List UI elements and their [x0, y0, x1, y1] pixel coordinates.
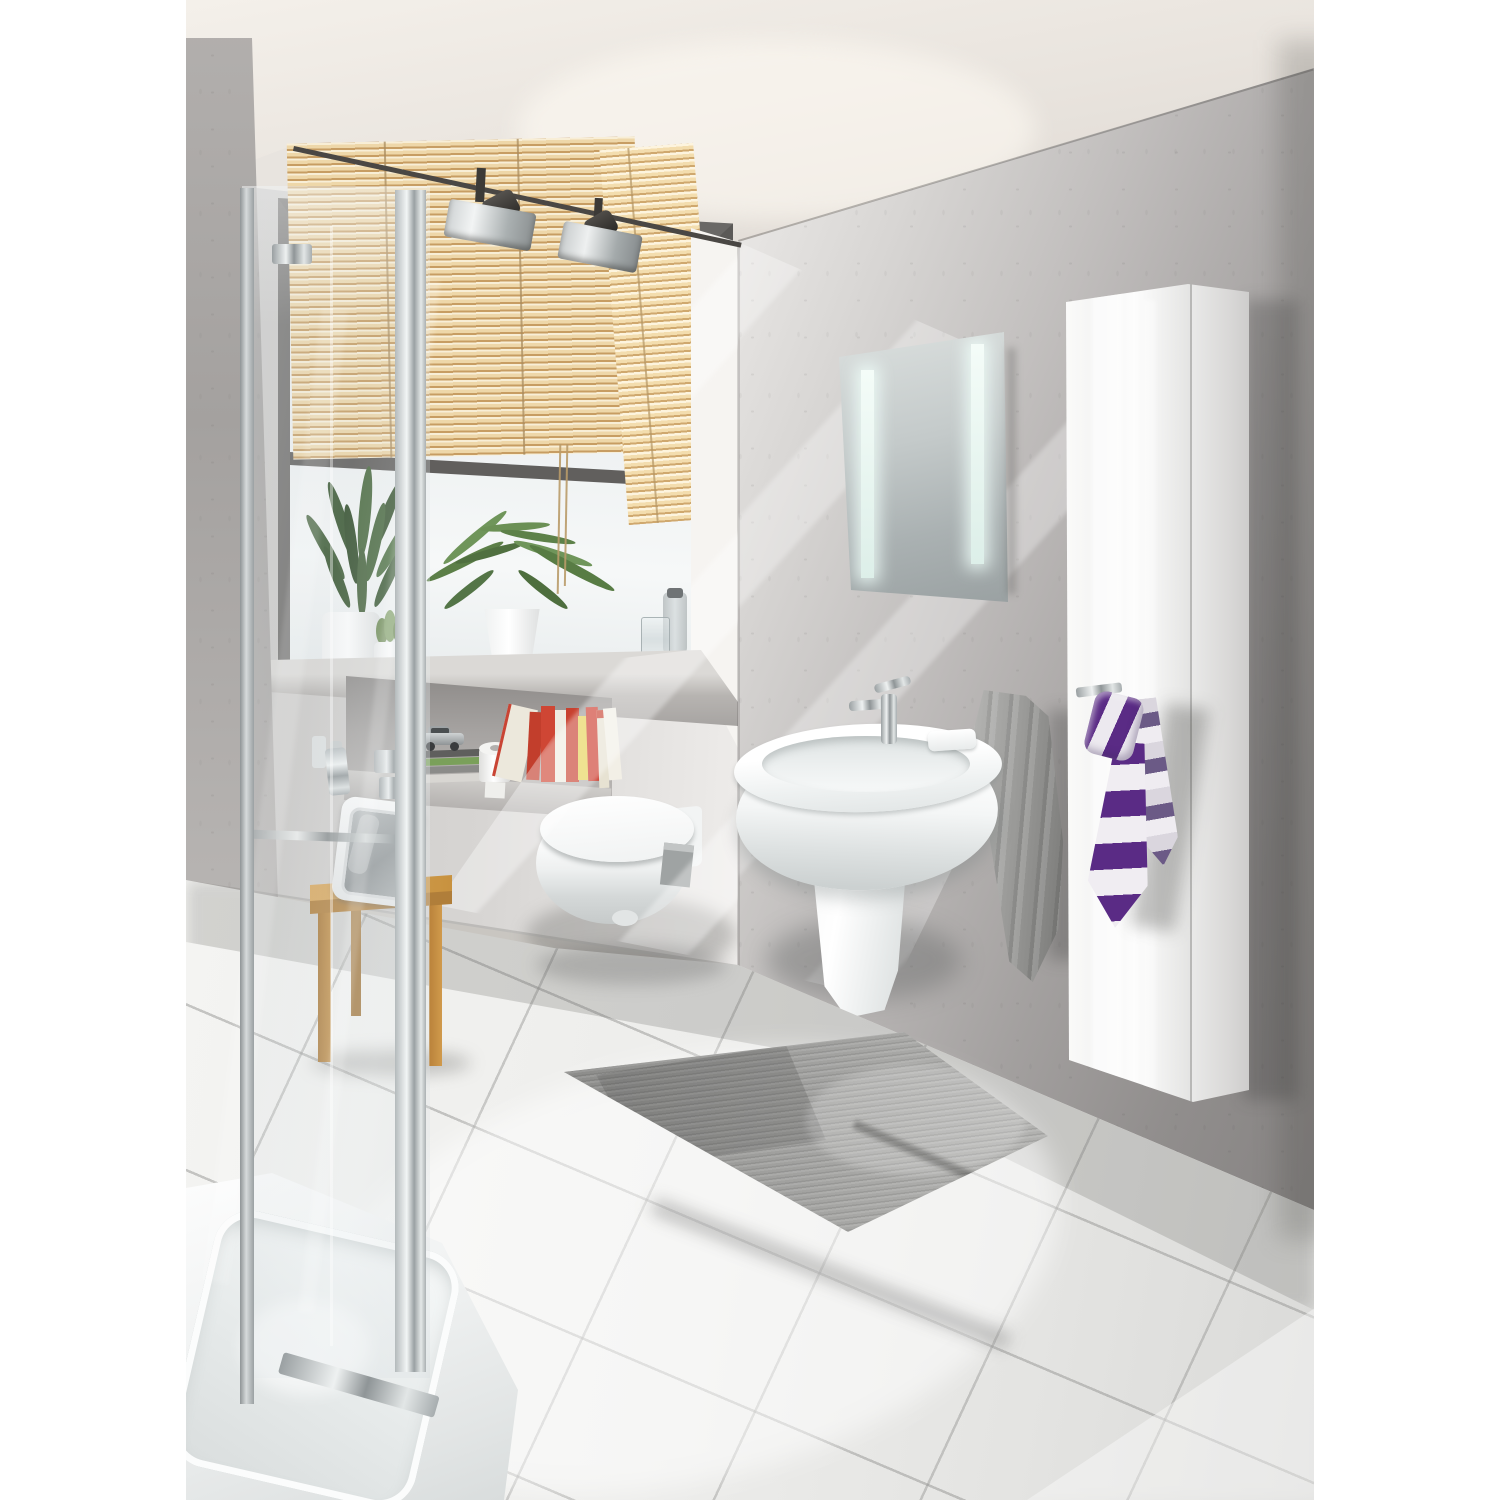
- mirror-led-strip-right: [971, 344, 984, 564]
- cabinet-door-seam: [1190, 280, 1192, 1110]
- wall-clamp: [272, 244, 312, 264]
- glass-frame-left: [240, 188, 254, 1404]
- spotlight-2: [558, 196, 650, 276]
- bottle-cap: [667, 588, 683, 598]
- page: [0, 0, 1500, 1500]
- mirror-led-strip-left: [861, 370, 874, 578]
- mirror-shadow: [1008, 348, 1015, 594]
- blind-pull-cords: [555, 444, 572, 596]
- glass-frame-right: [395, 190, 426, 1372]
- aloe-plant: [416, 505, 606, 670]
- right-edge-shade: [1278, 40, 1314, 1240]
- faucet-body: [881, 694, 897, 744]
- bathroom-photo: [186, 0, 1314, 1500]
- toilet-floor-shadow: [536, 945, 726, 985]
- spotlight-1: [442, 164, 542, 250]
- illuminated-mirror: [839, 332, 1009, 604]
- soap-dish: [927, 728, 976, 751]
